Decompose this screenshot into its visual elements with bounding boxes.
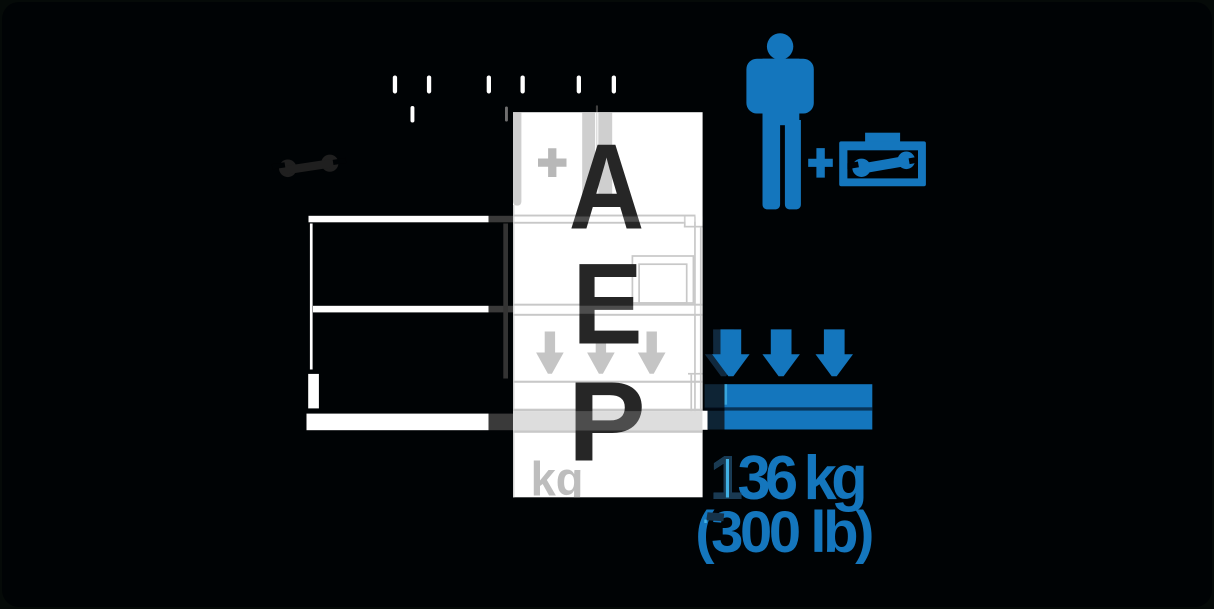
svg-text:A: A — [569, 119, 645, 255]
svg-text:E: E — [572, 240, 642, 368]
svg-text:(300 lb): (300 lb) — [695, 500, 872, 565]
